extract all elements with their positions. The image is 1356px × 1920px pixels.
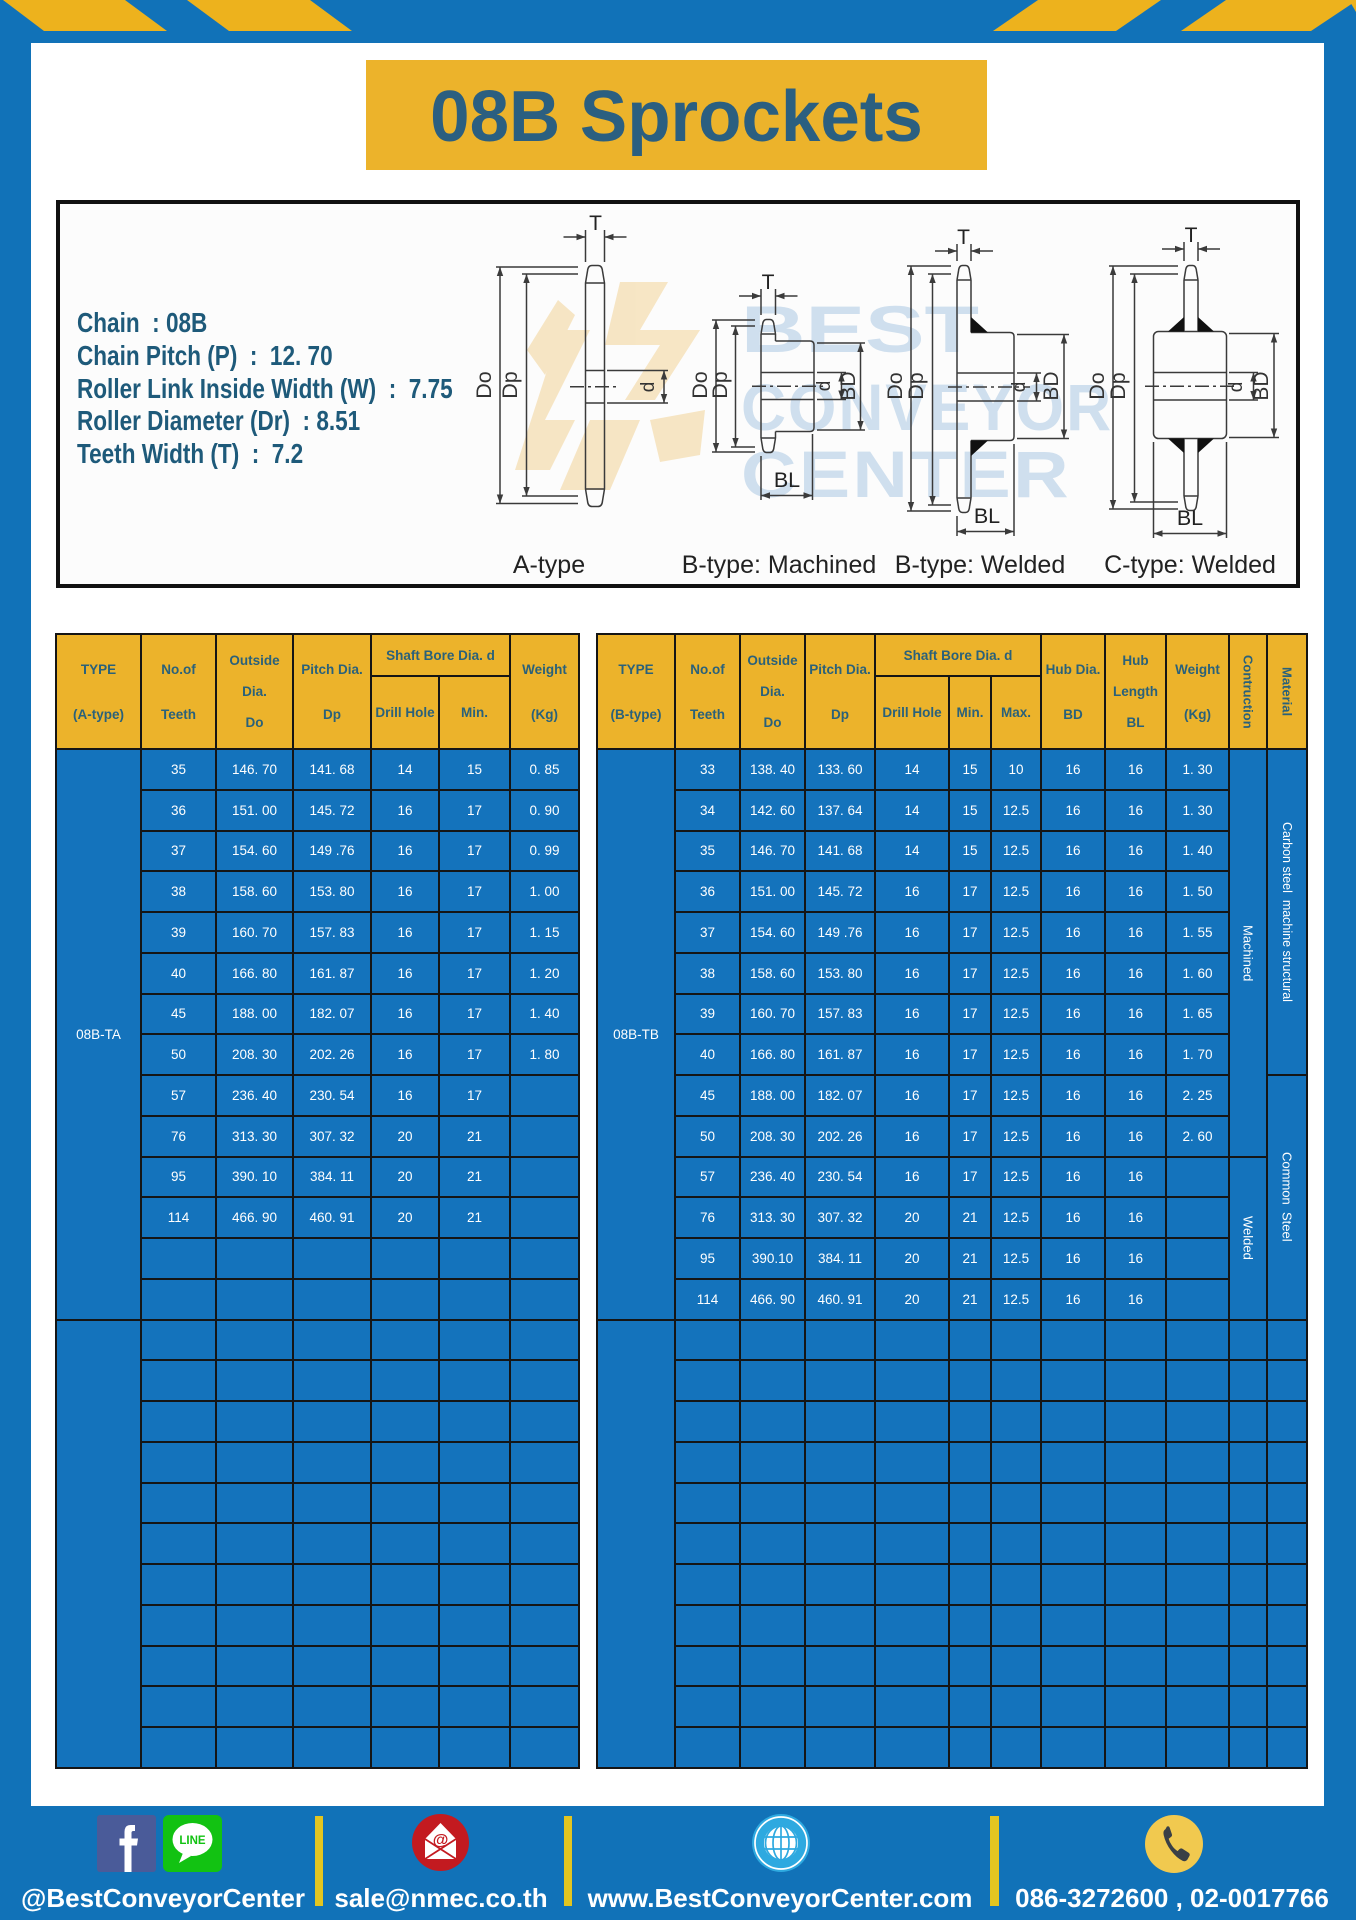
- svg-text:T: T: [589, 212, 602, 235]
- svg-text:d: d: [638, 382, 659, 393]
- svg-text:LINE: LINE: [179, 1835, 206, 1847]
- svg-text:d: d: [1226, 382, 1247, 393]
- svg-text:T: T: [762, 271, 775, 294]
- svg-text:@: @: [433, 1832, 449, 1849]
- svg-text:Dp: Dp: [1106, 372, 1130, 400]
- svg-text:BD: BD: [837, 371, 860, 400]
- svg-text:d: d: [814, 381, 835, 392]
- svg-text:BD: BD: [1250, 371, 1273, 400]
- svg-text:T: T: [957, 226, 970, 249]
- svg-text:BL: BL: [774, 468, 800, 492]
- svg-text:C-type: Welded: C-type: Welded: [1104, 551, 1276, 579]
- svg-text:B-type: Machined: B-type: Machined: [682, 551, 877, 579]
- svg-text:A-type: A-type: [513, 551, 585, 579]
- svg-text:Dp: Dp: [904, 372, 928, 400]
- svg-text:T: T: [1185, 224, 1198, 247]
- svg-text:d: d: [1009, 382, 1030, 393]
- svg-text:BL: BL: [1177, 506, 1203, 530]
- svg-text:Dp: Dp: [708, 371, 732, 399]
- svg-text:BL: BL: [974, 504, 1000, 528]
- svg-text:B-type: Welded: B-type: Welded: [895, 551, 1065, 579]
- svg-text:BD: BD: [1040, 371, 1063, 400]
